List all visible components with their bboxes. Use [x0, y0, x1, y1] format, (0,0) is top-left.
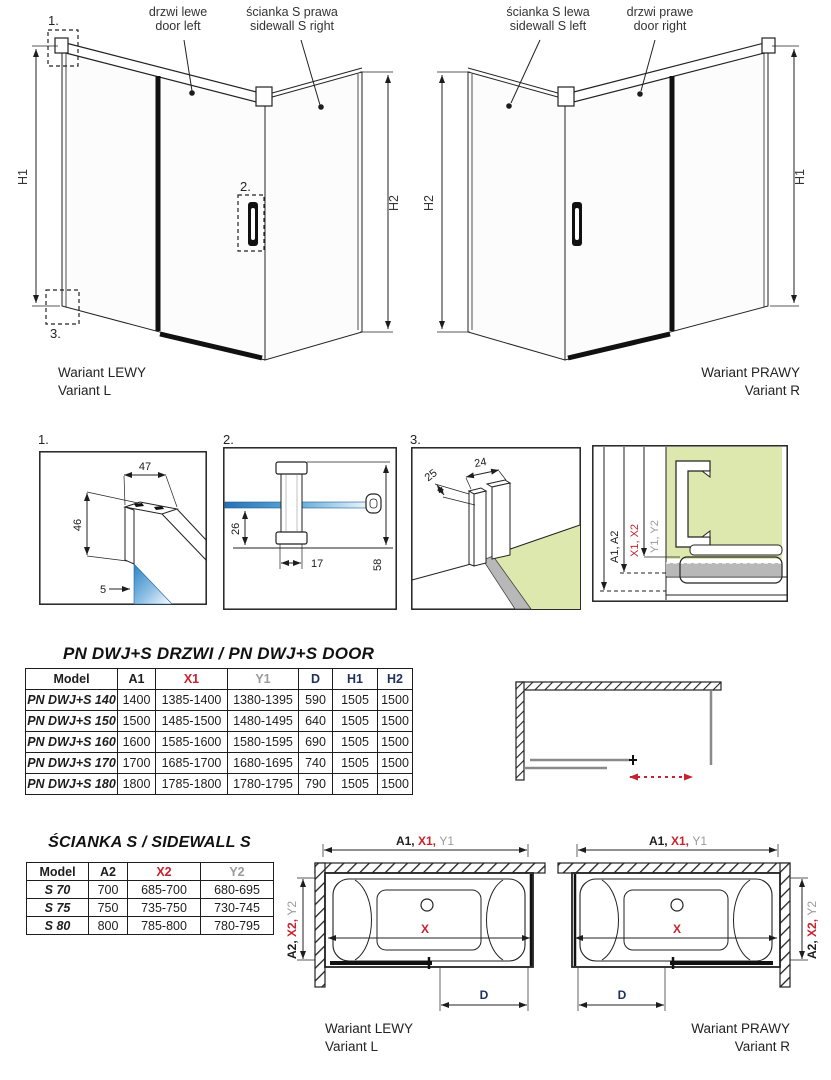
dim-x1: X1, — [418, 834, 439, 848]
value-cell: 590 — [299, 690, 333, 711]
table-row: PN DWJ+S 150 1500 1485-1500 1480-1495 64… — [26, 711, 413, 732]
col-model: Model — [27, 863, 89, 881]
value-cell: 1505 — [333, 753, 378, 774]
dim-h2-right: H2 — [422, 195, 436, 211]
callout-3: 3. — [50, 326, 61, 341]
table-row: PN DWJ+S 170 1700 1685-1700 1680-1695 74… — [26, 753, 413, 774]
value-cell: 780-795 — [201, 917, 274, 935]
side-dim-label: A2, X2, Y2 — [285, 901, 299, 959]
col-h1: H1 — [333, 669, 378, 690]
plan-view-right: A1, X1, Y1 X A2, X2, Y2 D War — [558, 834, 819, 1054]
plan-right-caption-en: Variant R — [735, 1039, 791, 1054]
handle-knob — [366, 494, 381, 513]
door-table-title: PN DWJ+S DRZWI / PN DWJ+S DOOR — [25, 644, 412, 664]
rail-end-cap — [762, 38, 775, 53]
dim-x: X — [421, 922, 429, 936]
dim-a2: A2, — [805, 937, 819, 959]
value-cell: 680-695 — [201, 881, 274, 899]
dim-d: D — [618, 988, 627, 1002]
value-cell: 1685-1700 — [156, 753, 228, 774]
value-cell: 1500 — [378, 753, 413, 774]
value-cell: 1600 — [118, 732, 156, 753]
door-dimensions-table: Model A1 X1 Y1 D H1 H2 PN DWJ+S 140 1400… — [25, 668, 413, 795]
value-cell: 800 — [89, 917, 128, 935]
detail-3-bottom-guide: 24 25 — [411, 447, 581, 610]
right-variant-drawing: ścianka S lewa sidewall S left drzwi pra… — [422, 5, 807, 398]
col-a2: A2 — [89, 863, 128, 881]
drain-icon — [671, 899, 683, 911]
value-cell: 1800 — [118, 774, 156, 795]
model-cell: PN DWJ+S 180 — [26, 774, 118, 795]
table-row: PN DWJ+S 180 1800 1785-1800 1780-1795 79… — [26, 774, 413, 795]
dim-a2: A2, — [285, 937, 299, 959]
value-cell: 700 — [89, 881, 128, 899]
drain-icon — [421, 899, 433, 911]
dim-x1: X1, — [671, 834, 692, 848]
value-cell: 730-745 — [201, 899, 274, 917]
sidewall-table-title: ŚCIANKA S / SIDEWALL S — [26, 834, 273, 852]
value-cell: 1385-1400 — [156, 690, 228, 711]
wall-top — [516, 682, 721, 690]
dim-x: X — [673, 922, 681, 936]
model-cell: PN DWJ+S 150 — [26, 711, 118, 732]
col-y2: Y2 — [201, 863, 274, 881]
bathtub-outline — [572, 873, 780, 967]
dim-46: 46 — [72, 519, 84, 531]
value-cell: 1505 — [333, 774, 378, 795]
door-label-en: door left — [155, 19, 201, 33]
wall-left — [516, 682, 524, 780]
dim-y2: Y2 — [805, 901, 819, 916]
value-cell: 1580-1595 — [228, 732, 299, 753]
right-caption-pl: Wariant PRAWY — [701, 365, 800, 380]
value-cell: 1505 — [333, 690, 378, 711]
product-sheet-page: 1. 2. 3. drzwi lewe door left ścianka S … — [0, 0, 831, 1080]
value-cell: 1780-1795 — [228, 774, 299, 795]
value-cell: 685-700 — [128, 881, 201, 899]
col-y1: Y1 — [228, 669, 299, 690]
detail-3-label: 3. — [410, 432, 421, 447]
value-cell: 690 — [299, 732, 333, 753]
model-cell: PN DWJ+S 140 — [26, 690, 118, 711]
dim-h1-right: H1 — [793, 169, 807, 185]
detail-2-label: 2. — [223, 432, 234, 447]
model-cell: S 70 — [27, 881, 89, 899]
sidewall-label-pl: ścianka S prawa — [246, 5, 338, 19]
value-cell: 735-750 — [128, 899, 201, 917]
dim-58: 58 — [372, 559, 384, 571]
value-cell: 1700 — [118, 753, 156, 774]
dim-24: 24 — [473, 456, 487, 470]
plan-left-caption-en: Variant L — [325, 1039, 379, 1054]
value-cell: 1585-1600 — [156, 732, 228, 753]
col-x1: X1 — [156, 669, 228, 690]
side-dim-label: A2, X2, Y2 — [805, 901, 819, 959]
value-cell: 790 — [299, 774, 333, 795]
model-cell: S 75 — [27, 899, 89, 917]
value-cell: 1785-1800 — [156, 774, 228, 795]
callout-1: 1. — [48, 13, 59, 28]
wall-right — [780, 863, 790, 987]
dim-x1-x2: X1, X2 — [629, 524, 641, 557]
callout-2: 2. — [240, 179, 251, 194]
table-header-row: Model A1 X1 Y1 D H1 H2 — [26, 669, 413, 690]
dim-a1-a2: A1, A2 — [609, 531, 621, 563]
dim-a1: A1, — [649, 834, 671, 848]
right-caption-en: Variant R — [745, 383, 801, 398]
dim-47: 47 — [139, 461, 151, 473]
door-label-en: door right — [634, 19, 687, 33]
dim-d: D — [480, 988, 489, 1002]
dim-5: 5 — [100, 584, 106, 596]
sidewall-label-en: sidewall S left — [510, 19, 587, 33]
wall-left — [315, 863, 325, 987]
col-model: Model — [26, 669, 118, 690]
value-cell: 1380-1395 — [228, 690, 299, 711]
door-label-pl: drzwi lewe — [149, 5, 207, 19]
left-caption-pl: Wariant LEWY — [58, 365, 146, 380]
dim-a1: A1, — [396, 834, 418, 848]
detail-2-handle-section: 26 17 58 — [223, 447, 397, 610]
value-cell: 740 — [299, 753, 333, 774]
value-cell: 1500 — [378, 690, 413, 711]
dim-x2: X2, — [285, 916, 299, 937]
sliding-direction-schematic — [480, 655, 810, 790]
value-cell: 1680-1695 — [228, 753, 299, 774]
value-cell: 1500 — [378, 732, 413, 753]
value-cell: 1400 — [118, 690, 156, 711]
table-row: S 75 750 735-750 730-745 — [27, 899, 274, 917]
table-header-row: Model A2 X2 Y2 — [27, 863, 274, 881]
col-a1: A1 — [118, 669, 156, 690]
col-d: D — [299, 669, 333, 690]
corner-post — [256, 87, 272, 106]
bathtub-outline — [325, 873, 533, 967]
rail-end-cap — [55, 38, 68, 53]
dim-x2: X2, — [805, 916, 819, 937]
door-label-pl: drzwi prawe — [627, 5, 694, 19]
dim-y1: Y1 — [439, 834, 454, 848]
value-cell: 1505 — [333, 732, 378, 753]
model-cell: S 80 — [27, 917, 89, 935]
left-caption-en: Variant L — [58, 383, 112, 398]
model-cell: PN DWJ+S 170 — [26, 753, 118, 774]
sidewall-dimensions-table: Model A2 X2 Y2 S 70 700 685-700 680-695 … — [26, 862, 274, 935]
dim-17: 17 — [311, 558, 323, 570]
wall-top — [315, 863, 545, 873]
handle-tube — [281, 474, 302, 532]
left-variant-drawing: 1. 2. 3. drzwi lewe door left ścianka S … — [16, 5, 401, 398]
table-row: S 80 800 785-800 780-795 — [27, 917, 274, 935]
value-cell: 750 — [89, 899, 128, 917]
sidewall-label-pl: ścianka S lewa — [506, 5, 589, 19]
plan-view-left: A1, X1, Y1 X A2, X2, Y2 D War — [285, 834, 545, 1054]
dim-26: 26 — [230, 523, 242, 535]
table-row: PN DWJ+S 140 1400 1385-1400 1380-1395 59… — [26, 690, 413, 711]
model-cell: PN DWJ+S 160 — [26, 732, 118, 753]
sidewall-glass — [468, 72, 565, 360]
value-cell: 640 — [299, 711, 333, 732]
dim-h2-left: H2 — [387, 195, 401, 211]
wall-top — [558, 863, 790, 873]
plan-right-caption-pl: Wariant PRAWY — [691, 1021, 790, 1036]
glass-pane — [666, 563, 782, 576]
col-x2: X2 — [128, 863, 201, 881]
detail-drawings-row: 1. 2. 3. 47 — [30, 432, 795, 617]
value-cell: 1480-1495 — [228, 711, 299, 732]
dim-h1-left: H1 — [16, 169, 30, 185]
value-cell: 1485-1500 — [156, 711, 228, 732]
sidewall-label-en: sidewall S right — [250, 19, 335, 33]
detail-1-wall-profile: 47 46 5 — [39, 451, 207, 605]
plan-left-caption-pl: Wariant LEWY — [325, 1021, 413, 1036]
value-cell: 1500 — [118, 711, 156, 732]
dim-y1-y2: Y1, Y2 — [649, 520, 661, 553]
top-dim-label: A1, X1, Y1 — [649, 834, 707, 848]
dim-y2: Y2 — [285, 901, 299, 916]
col-h2: H2 — [378, 669, 413, 690]
value-cell: 785-800 — [128, 917, 201, 935]
table-row: PN DWJ+S 160 1600 1585-1600 1580-1595 69… — [26, 732, 413, 753]
value-cell: 1505 — [333, 711, 378, 732]
sidewall-glass — [265, 72, 362, 360]
detail-1-label: 1. — [38, 432, 49, 447]
value-cell: 1500 — [378, 774, 413, 795]
table-row: S 70 700 685-700 680-695 — [27, 881, 274, 899]
top-dim-label: A1, X1, Y1 — [396, 834, 454, 848]
detail-4-dimension-reference: A1, A2 X1, X2 Y1, Y2 — [592, 445, 788, 602]
dim-y1: Y1 — [692, 834, 707, 848]
corner-post — [558, 87, 574, 106]
perspective-drawings: 1. 2. 3. drzwi lewe door left ścianka S … — [0, 0, 831, 420]
value-cell: 1500 — [378, 711, 413, 732]
plan-views: A1, X1, Y1 X A2, X2, Y2 D War — [285, 832, 831, 1080]
